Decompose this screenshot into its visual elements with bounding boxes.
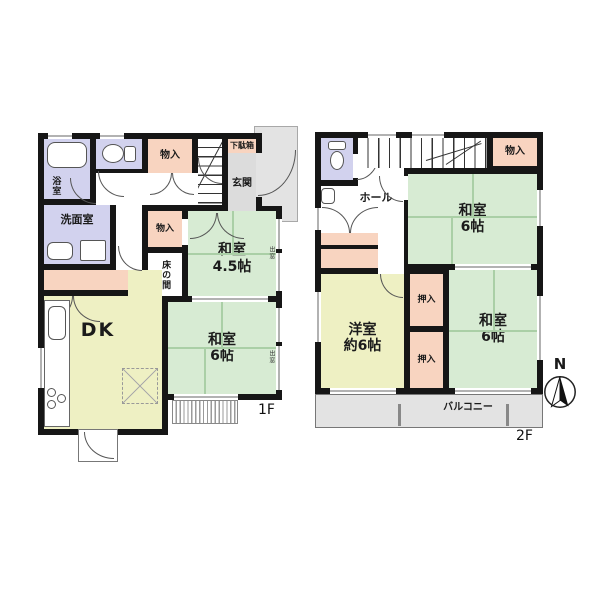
washitsu6-label-2: 6帖 bbox=[210, 348, 234, 364]
window bbox=[276, 219, 282, 249]
tatami-line bbox=[221, 302, 223, 347]
tatami-line bbox=[449, 330, 537, 332]
storage-label: 物入 bbox=[156, 224, 174, 234]
bay-window-label: 出窓 bbox=[267, 246, 274, 260]
toilet-tank-icon bbox=[328, 141, 346, 150]
f2-toilet-room bbox=[321, 138, 353, 180]
window bbox=[537, 296, 543, 360]
window bbox=[315, 292, 321, 342]
window bbox=[315, 208, 321, 230]
balcony-label-box: バルコニー bbox=[420, 400, 516, 415]
dk-label: DK bbox=[81, 320, 116, 342]
tatami-line bbox=[451, 217, 453, 264]
tatami-line bbox=[168, 347, 276, 349]
f1-dk-closet bbox=[44, 270, 128, 290]
yoshitsu-label-2: 約6帖 bbox=[344, 338, 382, 354]
tatami-line bbox=[493, 270, 495, 330]
tatami-line bbox=[188, 253, 276, 255]
f1-storage-mid: 物入 bbox=[148, 211, 182, 247]
f1-storage-top: 物入 bbox=[148, 139, 192, 173]
f1-shoe-cabinet: 下駄箱 bbox=[228, 139, 256, 153]
window bbox=[276, 253, 282, 291]
storage-label: 物入 bbox=[505, 146, 525, 158]
f2-washitsu6-lower: 和室 6帖 bbox=[449, 270, 537, 388]
washbasin-icon bbox=[321, 188, 335, 204]
f2-stairs bbox=[358, 138, 487, 168]
window bbox=[38, 348, 44, 388]
washroom-label: 洗面室 bbox=[61, 214, 94, 227]
window bbox=[537, 190, 543, 226]
f2-washitsu6-upper: 和室 6帖 bbox=[408, 174, 537, 264]
f1-entrance: 玄関 bbox=[228, 153, 256, 214]
compass-n-label: N bbox=[554, 356, 567, 373]
floorplan-canvas: 浴室 物入 下駄箱 玄関 洗面室 物入 床の間 和室 4.5帖 bbox=[0, 0, 600, 600]
tatami-line bbox=[204, 348, 206, 394]
oshiire-label: 押入 bbox=[417, 355, 435, 365]
window bbox=[455, 388, 531, 394]
toilet-icon bbox=[330, 151, 344, 170]
f2-storage: 物入 bbox=[493, 138, 537, 166]
stove-burner-icon bbox=[47, 400, 56, 409]
stove-burner-icon bbox=[47, 388, 56, 397]
compass-icon bbox=[542, 374, 578, 410]
entrance-label: 玄関 bbox=[232, 178, 252, 190]
washing-machine-icon bbox=[80, 240, 106, 261]
f2-oshiire-upper: 押入 bbox=[410, 274, 443, 326]
window bbox=[48, 133, 72, 139]
bay-window-label: 出窓 bbox=[267, 350, 274, 364]
kitchen-sink-icon bbox=[48, 306, 66, 340]
window bbox=[330, 388, 396, 394]
shoe-cabinet-label: 下駄箱 bbox=[230, 141, 254, 150]
balcony-label: バルコニー bbox=[443, 402, 493, 414]
f2-hall-corridor bbox=[378, 233, 404, 274]
f1-toilet-room bbox=[96, 139, 142, 169]
f1-veranda bbox=[172, 400, 238, 424]
f2-washitsu6u-label-2: 6帖 bbox=[461, 219, 485, 235]
balcony-post bbox=[398, 404, 401, 426]
tatami-line bbox=[472, 174, 474, 216]
f2-oshiire-lower: 押入 bbox=[410, 332, 443, 388]
window bbox=[412, 132, 444, 138]
f1-washroom: 洗面室 bbox=[44, 205, 110, 264]
f1-washitsu-6: 和室 6帖 bbox=[168, 302, 276, 394]
washitsu45-label-2: 4.5帖 bbox=[213, 259, 252, 275]
bathroom-label: 浴室 bbox=[50, 176, 60, 196]
toilet-icon bbox=[102, 144, 124, 163]
floor2-label: 2F bbox=[516, 428, 533, 444]
refrigerator-space bbox=[122, 368, 158, 404]
oshiire-label: 押入 bbox=[417, 295, 435, 305]
window bbox=[276, 346, 282, 390]
bathtub-icon bbox=[47, 142, 87, 168]
toilet-tank-icon bbox=[124, 146, 136, 162]
sliding-door bbox=[192, 296, 268, 302]
window bbox=[368, 132, 396, 138]
yoshitsu-label-1: 洋室 bbox=[349, 322, 377, 338]
tatami-line bbox=[408, 216, 537, 218]
washbasin-icon bbox=[47, 242, 73, 260]
compass-n-box: N bbox=[544, 356, 576, 374]
doorway bbox=[182, 219, 188, 245]
floor1-label: 1F bbox=[258, 402, 275, 418]
stove-burner-icon bbox=[57, 394, 66, 403]
dk-label-box: DK bbox=[70, 318, 126, 344]
sliding-door bbox=[455, 264, 531, 270]
f2-closet-hall-side bbox=[321, 233, 378, 245]
f2-closet-room-side bbox=[321, 249, 378, 268]
storage-label: 物入 bbox=[160, 150, 180, 162]
window bbox=[276, 308, 282, 342]
